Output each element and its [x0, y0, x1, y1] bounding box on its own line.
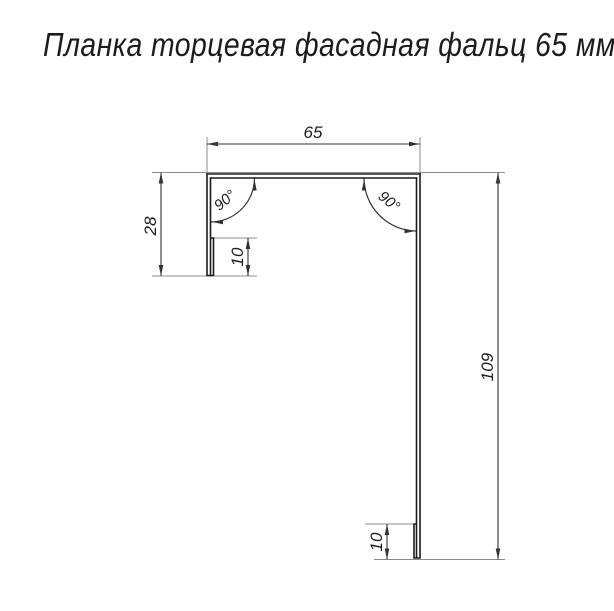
arrow-left-height-top-icon [159, 173, 164, 184]
dim-label-top-width: 65 [304, 123, 323, 142]
arrow-right-height-top-icon [496, 173, 501, 184]
dim-label-bottom-hem: 10 [367, 532, 386, 551]
extension-lines [152, 137, 505, 560]
angle-label-left: 90° [211, 187, 239, 215]
arrow-width-right-icon [409, 142, 420, 147]
dimension-lines [161, 144, 498, 560]
profile-left-leg [207, 174, 214, 276]
dim-label-right-height: 109 [478, 352, 497, 381]
profile-drawing-canvas: 65 28 10 109 10 90° 90° [0, 0, 614, 611]
arrow-angle-left-top-icon [252, 180, 256, 191]
drawing-sheet: Планка торцевая фасадная фальц 65 мм [0, 0, 614, 611]
angle-label-right: 90° [375, 188, 403, 216]
arrow-width-left-icon [207, 142, 218, 147]
profile-top-flange [207, 174, 420, 178]
arrow-angle-left-leg-icon [212, 220, 223, 224]
dim-label-left-height: 28 [141, 216, 160, 236]
arrow-left-height-bottom-icon [159, 265, 164, 276]
profile-right-leg [414, 174, 420, 558]
arrow-angle-right-leg-icon [405, 229, 416, 233]
profile-outline [207, 174, 420, 558]
arrow-right-height-bottom-icon [496, 549, 501, 560]
arrow-angle-right-top-icon [362, 180, 366, 191]
dimension-labels: 65 28 10 109 10 90° 90° [141, 123, 497, 551]
arrow-left-hem-top-icon [246, 238, 251, 249]
dim-label-left-hem: 10 [228, 247, 247, 266]
